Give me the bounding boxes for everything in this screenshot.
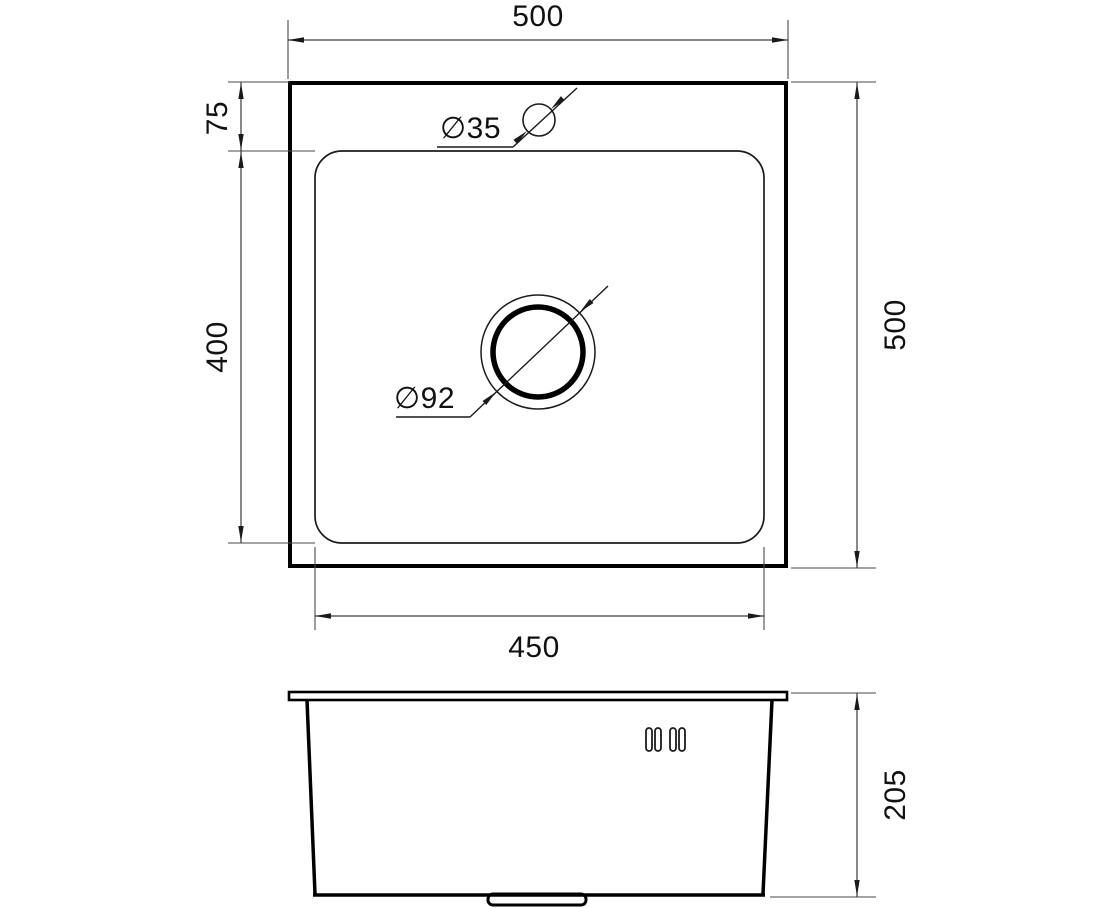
- dimension-overall-width: 500: [288, 0, 788, 79]
- dimension-body-height: 205: [770, 693, 912, 897]
- arrowhead: [288, 37, 304, 42]
- sink-outer-edge: [290, 83, 786, 566]
- arrowhead: [748, 613, 764, 618]
- arrowhead: [238, 83, 243, 99]
- dim-label-rim-offset: 75: [201, 101, 234, 135]
- arrowhead: [854, 694, 859, 710]
- drawing-canvas: 500 500 75 400 450: [0, 0, 1110, 908]
- top-view: [290, 83, 786, 566]
- overflow-slot: [655, 728, 661, 751]
- sink-bowl-edge: [315, 151, 764, 543]
- callout-faucet-hole: ∅35: [437, 88, 577, 147]
- left-wall: [307, 700, 315, 894]
- callout-drain-hole: ∅92: [394, 286, 608, 417]
- dimension-overall-depth: 500: [791, 82, 912, 568]
- overflow-slot: [646, 728, 652, 751]
- arrowhead: [772, 37, 788, 42]
- dim-label-overall-depth: 500: [879, 299, 912, 351]
- dim-label-overall-width: 500: [512, 0, 564, 33]
- dim-label-faucet-hole: ∅35: [440, 112, 501, 145]
- dim-label-bowl-width: 450: [508, 631, 560, 664]
- right-wall: [763, 700, 772, 894]
- rim-flange: [289, 692, 787, 700]
- arrowhead: [315, 613, 331, 618]
- sink-technical-drawing: 500 500 75 400 450: [0, 0, 1110, 908]
- dim-label-body-height: 205: [879, 769, 912, 821]
- arrowhead: [854, 551, 859, 567]
- dimension-rim-offset: 75: [201, 82, 315, 151]
- dim-label-bowl-depth: 400: [201, 321, 234, 373]
- overflow-slot: [679, 728, 685, 751]
- arrowhead: [854, 83, 859, 99]
- side-view: [289, 692, 787, 905]
- arrowhead: [238, 152, 243, 168]
- arrowhead: [854, 880, 859, 896]
- arrowhead: [238, 134, 243, 150]
- dim-label-drain-hole: ∅92: [394, 382, 455, 415]
- overflow-slot: [670, 728, 676, 751]
- dimension-bowl-depth: 400: [201, 151, 315, 543]
- faucet-hole: [523, 104, 555, 136]
- arrowhead: [238, 526, 243, 542]
